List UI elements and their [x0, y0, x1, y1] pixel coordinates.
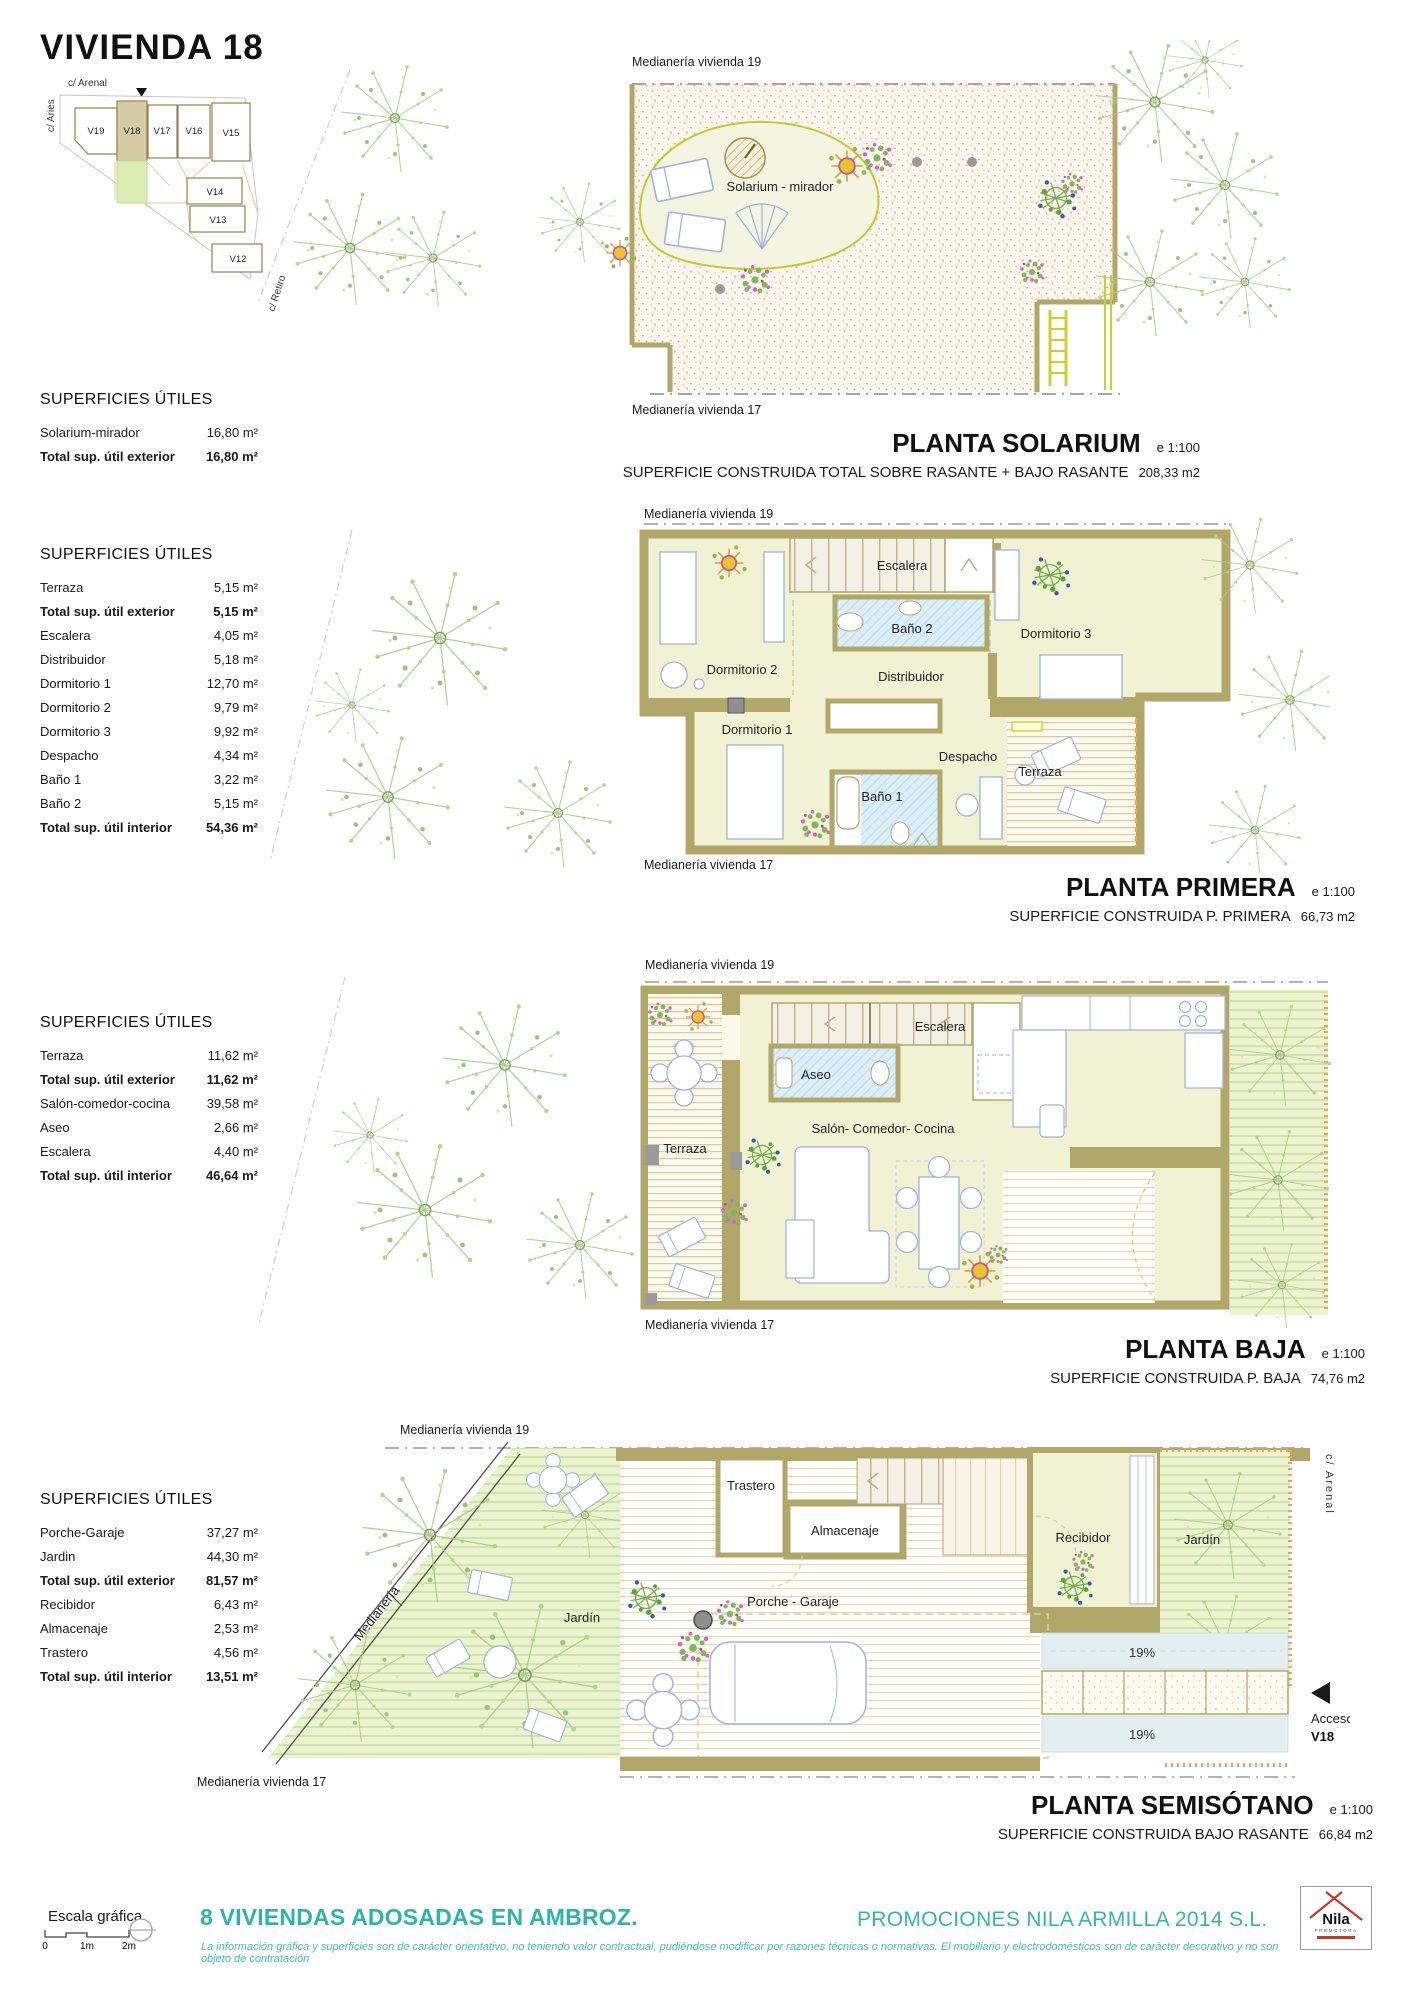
svg-text:V16: V16 [186, 126, 203, 137]
table-title: SUPERFICIES ÚTILES [40, 546, 258, 564]
svg-text:V12: V12 [230, 254, 247, 265]
svg-text:PROMOTORA: PROMOTORA [1315, 1928, 1358, 1933]
car-icon [710, 1642, 866, 1724]
table-row: Baño 13,22 m² [40, 767, 258, 791]
svg-text:Aseo: Aseo [801, 1067, 831, 1082]
access-unit-label: V18 [1311, 1729, 1334, 1744]
table-row: Despacho4,34 m² [40, 743, 258, 767]
plan-title: PLANTA BAJA [1125, 1334, 1306, 1364]
plan-area: 66,84 m2 [1319, 1827, 1373, 1842]
plan-subtitle: SUPERFICIE CONSTRUIDA TOTAL SOBRE RASANT… [623, 464, 1129, 481]
plan-subtitle: SUPERFICIE CONSTRUIDA BAJO RASANTE [998, 1826, 1309, 1843]
surfaces-table-solarium: SUPERFICIES ÚTILES Solarium-mirador16,80… [40, 391, 258, 468]
solarium-title-block: PLANTA SOLARIUMe 1:100 SUPERFICIE CONSTR… [623, 428, 1200, 482]
svg-text:Baño 1: Baño 1 [861, 789, 902, 804]
project-title: 8 VIVIENDAS ADOSADAS EN AMBROZ. [200, 1904, 638, 1931]
svg-text:V17: V17 [154, 126, 171, 137]
baja-title-block: PLANTA BAJAe 1:100 SUPERFICIE CONSTRUIDA… [1050, 1334, 1365, 1388]
table-row: Total sup. útil exterior5,15 m² [40, 599, 258, 623]
svg-text:Escalera: Escalera [877, 558, 928, 573]
svg-text:Dormitorio 1: Dormitorio 1 [722, 722, 793, 737]
semisotano-title-block: PLANTA SEMISÓTANOe 1:100 SUPERFICIE CONS… [998, 1790, 1373, 1844]
table-row: Distribuidor5,18 m² [40, 647, 258, 671]
party-wall-label: Medianería vivienda 17 [644, 858, 773, 872]
party-wall-label: Medianería vivienda 17 [632, 403, 761, 417]
table-row: Total sup. útil exterior16,80 m² [40, 444, 258, 468]
svg-text:V15: V15 [223, 128, 240, 139]
compass-icon [126, 1914, 158, 1946]
table-row: Escalera4,05 m² [40, 623, 258, 647]
access-arrow-icon [1311, 1682, 1330, 1704]
ramp-slope-label: 19% [1129, 1727, 1155, 1742]
svg-text:Salón- Comedor- Cocina: Salón- Comedor- Cocina [811, 1121, 955, 1136]
solarium-floor: Solarium - mirador [605, 84, 1120, 394]
svg-text:Recibidor: Recibidor [1056, 1530, 1112, 1545]
svg-text:Porche - Garaje: Porche - Garaje [747, 1594, 839, 1609]
svg-text:Trastero: Trastero [727, 1478, 775, 1493]
page-title: VIVIENDA 18 [40, 28, 264, 68]
table-row: Solarium-mirador16,80 m² [40, 420, 258, 444]
party-wall-label: Medianería vivienda 17 [197, 1775, 326, 1789]
plan-sheet: VIVIENDA 18 c/ Arenal c/ Aries c/ Retiro… [0, 0, 1414, 2000]
room-label-jardin-left: Jardín [564, 1610, 600, 1625]
developer-name: PROMOCIONES NILA ARMILLA 2014 S.L. [857, 1908, 1268, 1932]
svg-text:Terraza: Terraza [663, 1141, 707, 1156]
table-row: Escalera4,40 m² [40, 1139, 258, 1163]
table-row: Total sup. útil exterior81,57 m² [40, 1568, 258, 1592]
plan-title: PLANTA PRIMERA [1066, 872, 1296, 902]
svg-text:V14: V14 [207, 187, 224, 198]
ramp-slope-label: 19% [1129, 1645, 1155, 1660]
trees-left [332, 1004, 634, 1299]
surfaces-table-primera: SUPERFICIES ÚTILES Terraza5,15 m² Total … [40, 546, 258, 839]
plan-subtitle: SUPERFICIE CONSTRUIDA P. BAJA [1050, 1370, 1301, 1387]
table-row: Aseo2,66 m² [40, 1115, 258, 1139]
plan-solarium-drawing: Medianería vivienda 19 [250, 40, 1300, 425]
table-row: Baño 25,15 m² [40, 791, 258, 815]
svg-text:Escalera: Escalera [915, 1019, 966, 1034]
trees-right [1096, 40, 1291, 336]
street-label-arenal: c/ Arenal [68, 78, 107, 89]
svg-text:Terraza: Terraza [1018, 764, 1062, 779]
stairs [857, 1458, 943, 1504]
svg-text:Almacenaje: Almacenaje [811, 1523, 879, 1538]
svg-text:1m: 1m [80, 1941, 94, 1952]
plot-boundary-line [258, 70, 350, 302]
svg-text:V18: V18 [124, 126, 141, 137]
svg-text:Nila: Nila [1322, 1911, 1350, 1928]
plan-area: 208,33 m2 [1139, 465, 1200, 480]
nila-logo: Nila PROMOTORA [1300, 1886, 1372, 1950]
plan-area: 74,76 m2 [1311, 1371, 1365, 1386]
plan-scale: e 1:100 [1157, 440, 1200, 455]
table-row: Total sup. útil interior54,36 m² [40, 815, 258, 839]
svg-text:V13: V13 [210, 215, 227, 226]
table-row: Dormitorio 112,70 m² [40, 671, 258, 695]
plan-subtitle: SUPERFICIE CONSTRUIDA P. PRIMERA [1009, 908, 1290, 925]
lounger-icon [664, 212, 725, 252]
garden-right [1227, 990, 1331, 1328]
plan-primera-drawing: Medianería vivienda 19 [250, 505, 1330, 873]
room-label-jardin-right: Jardín [1184, 1532, 1220, 1547]
plan-title: PLANTA SEMISÓTANO [1031, 1790, 1314, 1820]
plan-title: PLANTA SOLARIUM [892, 428, 1140, 458]
table-row: Terraza11,62 m² [40, 1043, 258, 1067]
party-wall-label: Medianería vivienda 19 [632, 55, 761, 69]
svg-text:Dormitorio 2: Dormitorio 2 [707, 662, 778, 677]
party-wall-label: Medianería vivienda 19 [645, 958, 774, 972]
bathroom1 [832, 772, 940, 848]
plot-boundary-line [258, 977, 345, 1327]
table-row: Total sup. útil interior13,51 m² [40, 1664, 258, 1688]
svg-text:Despacho: Despacho [939, 749, 998, 764]
table-row: Total sup. útil interior46,64 m² [40, 1163, 258, 1187]
party-wall-label: Medianería vivienda 19 [400, 1423, 529, 1437]
surfaces-table-baja: SUPERFICIES ÚTILES Terraza11,62 m² Total… [40, 1014, 258, 1187]
party-wall-label: Medianería vivienda 19 [644, 507, 773, 521]
table-row: Porche-Garaje37,27 m² [40, 1520, 258, 1544]
legal-disclaimer: La información gráfica y superficies son… [201, 1941, 1291, 1965]
access-label: Acceso [1311, 1711, 1350, 1726]
table-row: Dormitorio 39,92 m² [40, 719, 258, 743]
plan-semisotano-drawing: Medianería vivienda 19 Medianería Jardín [190, 1420, 1350, 1795]
party-wall-label: Medianería vivienda 17 [645, 1318, 774, 1332]
table-row: Trastero4,56 m² [40, 1640, 258, 1664]
rear-deck [1003, 1170, 1155, 1303]
svg-text:Dormitorio 3: Dormitorio 3 [1021, 626, 1092, 641]
room-label-solarium: Solarium - mirador [727, 179, 835, 194]
plan-scale: e 1:100 [1312, 884, 1355, 899]
chimney [728, 698, 744, 713]
plan-baja-drawing: Medianería vivienda 19 [250, 955, 1340, 1335]
floorplan: Escalera Aseo Salón- Comedor- Cocina Ter… [645, 982, 1328, 1305]
trastero [718, 1458, 785, 1555]
table-row: Dormitorio 29,79 m² [40, 695, 258, 719]
table-title: SUPERFICIES ÚTILES [40, 1014, 258, 1032]
table-title: SUPERFICIES ÚTILES [40, 1491, 258, 1509]
svg-text:0: 0 [42, 1941, 48, 1952]
floorplan: Escalera Baño 2 Dormitorio 3 Dormitorio … [640, 524, 1226, 850]
garden-left: Medianería Jardín [262, 1442, 628, 1764]
ramps: 19% 19% [1042, 1633, 1288, 1752]
plot-v18-garden [117, 161, 147, 203]
plan-scale: e 1:100 [1322, 1346, 1365, 1361]
table-row: Salón-comedor-cocina39,58 m² [40, 1091, 258, 1115]
street-label-right: c/ Arenal [1323, 1454, 1335, 1515]
plan-area: 66,73 m2 [1301, 909, 1355, 924]
trees-left [314, 572, 612, 867]
table-row: Terraza5,15 m² [40, 575, 258, 599]
svg-text:V19: V19 [88, 126, 105, 137]
plan-scale: e 1:100 [1330, 1802, 1373, 1817]
svg-text:Distribuidor: Distribuidor [878, 669, 944, 684]
location-arrow-icon [136, 88, 147, 97]
street-label-aries: c/ Aries [46, 99, 57, 132]
wardrobe [828, 701, 940, 731]
surfaces-table-semisotano: SUPERFICIES ÚTILES Porche-Garaje37,27 m²… [40, 1491, 258, 1688]
table-title: SUPERFICIES ÚTILES [40, 391, 258, 409]
access-marker: Acceso V18 [1311, 1682, 1350, 1744]
column [694, 1611, 712, 1629]
table-row: Jardin44,30 m² [40, 1544, 258, 1568]
table-row: Almacenaje2,53 m² [40, 1616, 258, 1640]
trees-left [293, 65, 620, 306]
primera-title-block: PLANTA PRIMERAe 1:100 SUPERFICIE CONSTRU… [1009, 872, 1355, 926]
svg-text:Baño 2: Baño 2 [891, 621, 932, 636]
table-row: Total sup. útil exterior11,62 m² [40, 1067, 258, 1091]
table-row: Recibidor6,43 m² [40, 1592, 258, 1616]
